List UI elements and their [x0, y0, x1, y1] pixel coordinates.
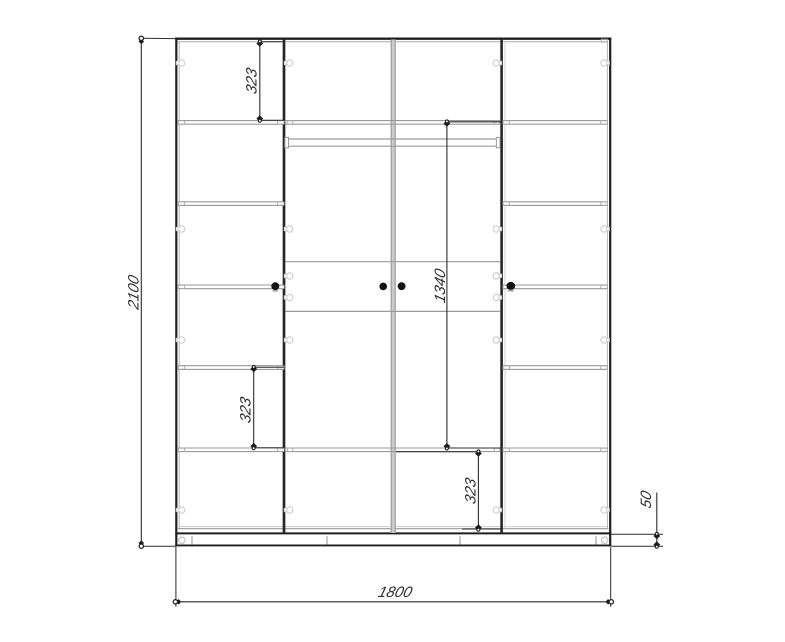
svg-text:1800: 1800: [376, 584, 414, 601]
svg-text:323: 323: [463, 476, 480, 506]
svg-text:2100: 2100: [126, 273, 143, 312]
svg-text:1340: 1340: [432, 267, 449, 305]
svg-text:323: 323: [244, 66, 261, 96]
svg-text:323: 323: [238, 395, 255, 425]
